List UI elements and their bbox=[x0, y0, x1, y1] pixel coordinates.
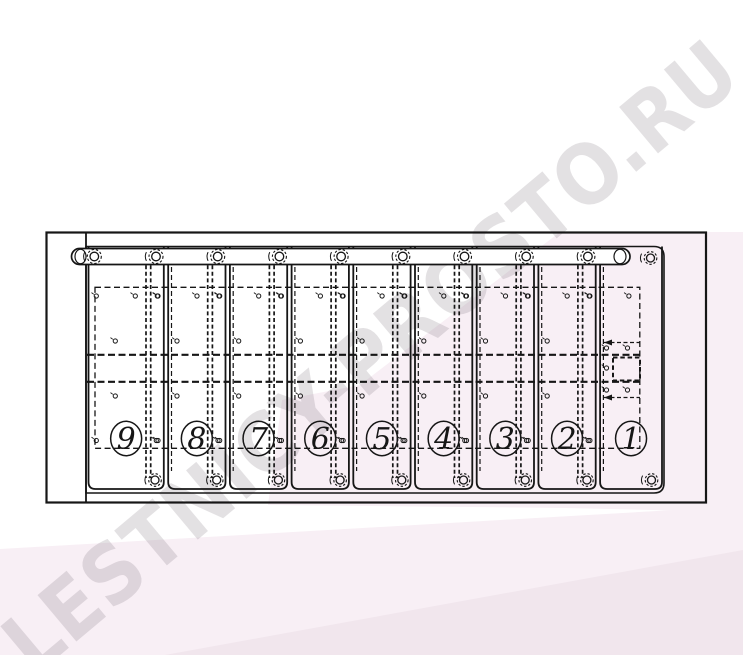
rivet-screw bbox=[237, 394, 241, 398]
rivet-screw-tick bbox=[562, 293, 564, 295]
rivet-screw-tick bbox=[623, 387, 625, 389]
dimension-arrowhead bbox=[604, 395, 612, 401]
step-number-label: 4 bbox=[433, 422, 453, 457]
rivet-screw bbox=[604, 388, 608, 392]
rivet-screw-tick bbox=[481, 393, 483, 395]
step-number-label: 2 bbox=[557, 422, 577, 457]
rivet-screw-tick bbox=[419, 393, 421, 395]
rivet-screw bbox=[483, 339, 487, 343]
step-number-label: 6 bbox=[311, 422, 330, 457]
rivet-screw-tick bbox=[377, 293, 379, 295]
rivet-screw bbox=[195, 294, 199, 298]
tread-bolt bbox=[583, 476, 591, 484]
rivet-screw-tick bbox=[172, 393, 174, 395]
rivet-screw bbox=[545, 394, 549, 398]
rivet-screw-tick bbox=[542, 338, 544, 340]
rivet-screw-tick bbox=[316, 293, 318, 295]
plate-corner-bolt-bottom-arc bbox=[641, 476, 642, 485]
rivet-screw bbox=[483, 394, 487, 398]
tread-bolt bbox=[151, 476, 159, 484]
rivet-screw-tick bbox=[192, 293, 194, 295]
plate-corner-bolt-top-arc bbox=[640, 254, 641, 263]
rivet-screw bbox=[545, 339, 549, 343]
rivet-screw-tick bbox=[481, 338, 483, 340]
staircase-top-view-drawing: 987654321 bbox=[0, 0, 743, 655]
tread-bolt-arc bbox=[268, 476, 269, 485]
rivet-screw bbox=[175, 339, 179, 343]
step-number-label: 3 bbox=[496, 422, 515, 457]
rivet-screw bbox=[360, 394, 364, 398]
rivet-screw-tick bbox=[542, 393, 544, 395]
rivet-screw-tick bbox=[419, 338, 421, 340]
step-number-label: 9 bbox=[117, 422, 136, 457]
tread-bolt-arc bbox=[207, 476, 208, 485]
rivet-screw-tick bbox=[92, 437, 94, 439]
technical-drawing-page: LESTNICY-PROSTO.RU 987654321 bbox=[0, 0, 743, 655]
tread-bolt-arc bbox=[577, 476, 578, 485]
rivet-screw bbox=[237, 339, 241, 343]
rivet-screw-tick bbox=[357, 393, 359, 395]
rivet-screw-tick bbox=[234, 393, 236, 395]
rivet-screw-tick bbox=[234, 338, 236, 340]
tread-bolt-arc bbox=[515, 476, 516, 485]
rivet-screw-tick bbox=[172, 338, 174, 340]
rivet-screw bbox=[604, 366, 608, 370]
rivet-screw bbox=[298, 339, 302, 343]
plate-corner-bolt-top bbox=[647, 254, 655, 262]
tread-bolt-arc bbox=[145, 476, 146, 485]
tread-bolt bbox=[274, 476, 282, 484]
step-number-label: 8 bbox=[187, 422, 206, 457]
rivet-screw bbox=[94, 294, 98, 298]
rivet-screw bbox=[257, 294, 261, 298]
rivet-screw-tick bbox=[624, 293, 626, 295]
rivet-screw-tick bbox=[92, 293, 94, 295]
rivet-screw bbox=[422, 339, 426, 343]
bracket-hidden-box bbox=[613, 358, 640, 381]
rivet-screw-tick bbox=[296, 393, 298, 395]
rivet-screw bbox=[360, 339, 364, 343]
tread-bolt-arc bbox=[330, 476, 331, 485]
rivet-screw bbox=[380, 294, 384, 298]
handrail-tube bbox=[72, 249, 631, 265]
rivet-screw bbox=[318, 294, 322, 298]
tread-bolt bbox=[213, 476, 221, 484]
rivet-screw-tick bbox=[131, 293, 133, 295]
rivet-screw-tick bbox=[357, 338, 359, 340]
step-number-label: 5 bbox=[372, 422, 391, 457]
rivet-screw bbox=[422, 394, 426, 398]
step-number-label: 1 bbox=[622, 422, 641, 457]
rivet-screw bbox=[298, 394, 302, 398]
rivet-screw-tick bbox=[623, 345, 625, 347]
tread-bolt bbox=[336, 476, 344, 484]
rivet-screw bbox=[565, 294, 569, 298]
rivet-screw-tick bbox=[111, 393, 113, 395]
rivet-screw-tick bbox=[254, 293, 256, 295]
rivet-screw bbox=[604, 346, 608, 350]
rivet-screw bbox=[625, 388, 629, 392]
tread-bolt bbox=[460, 476, 468, 484]
rivet-screw-tick bbox=[296, 338, 298, 340]
rivet-screw bbox=[113, 394, 117, 398]
rivet-screw bbox=[133, 294, 137, 298]
rivet-screw-tick bbox=[602, 345, 604, 347]
rivet-screw-tick bbox=[111, 338, 113, 340]
rivet-screw-tick bbox=[501, 293, 503, 295]
plate-corner-bolt-bottom bbox=[648, 476, 656, 484]
rivet-screw bbox=[175, 394, 179, 398]
dimension-arrowhead bbox=[604, 340, 612, 346]
tread-bolt-arc bbox=[453, 476, 454, 485]
rivet-screw bbox=[503, 294, 507, 298]
tread-bolt-arc bbox=[392, 476, 393, 485]
rivet-screw bbox=[625, 346, 629, 350]
rivet-screw bbox=[442, 294, 446, 298]
rivet-screw-tick bbox=[439, 293, 441, 295]
rivet-screw bbox=[113, 339, 117, 343]
tread-bolt bbox=[521, 476, 529, 484]
rivet-screw bbox=[627, 294, 631, 298]
step-number-label: 7 bbox=[249, 422, 269, 457]
tread-bolt bbox=[398, 476, 406, 484]
